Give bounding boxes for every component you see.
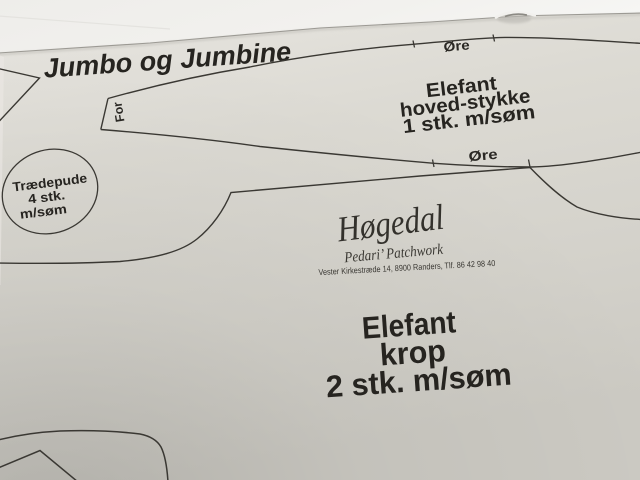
svg-text:Øre: Øre	[468, 146, 499, 164]
svg-text:Øre: Øre	[443, 37, 471, 54]
